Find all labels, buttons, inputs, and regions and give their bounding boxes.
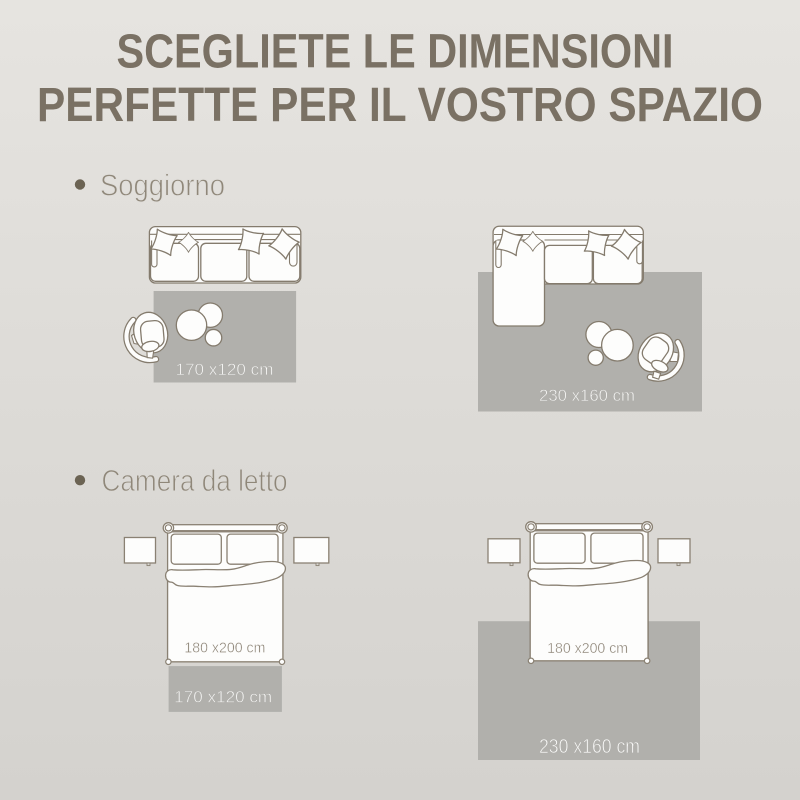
- svg-text:Camera da letto: Camera da letto: [102, 463, 288, 498]
- svg-text:230 x160 cm: 230 x160 cm: [539, 736, 640, 758]
- svg-text:230 x160 cm: 230 x160 cm: [539, 386, 635, 405]
- svg-text:PERFETTE PER IL VOSTRO SPAZIO: PERFETTE PER IL VOSTRO SPAZIO: [37, 78, 763, 132]
- svg-text:SCEGLIETE LE DIMENSIONI: SCEGLIETE LE DIMENSIONI: [117, 25, 674, 79]
- svg-text:170 x120 cm: 170 x120 cm: [174, 688, 272, 707]
- svg-text:Soggiorno: Soggiorno: [100, 168, 225, 203]
- svg-text:180 x200 cm: 180 x200 cm: [184, 640, 265, 657]
- svg-text:180 x200 cm: 180 x200 cm: [547, 640, 628, 657]
- svg-text:170 x120 cm: 170 x120 cm: [176, 360, 274, 379]
